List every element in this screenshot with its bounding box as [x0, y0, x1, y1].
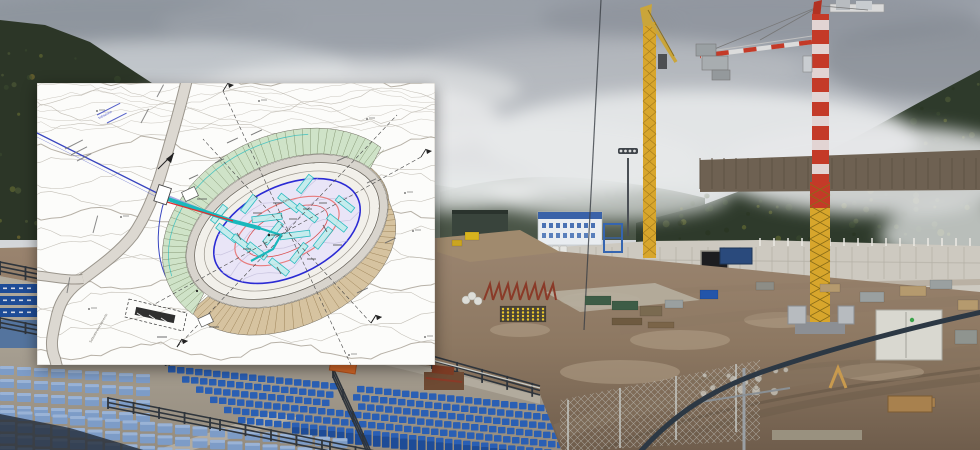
wood-pallet: [888, 396, 932, 412]
dark-building-roof: [452, 210, 508, 214]
counterweight: [856, 1, 872, 10]
shed-sign: [910, 318, 914, 322]
ballast-block: [788, 306, 806, 324]
construction-site-photo: Sottoattraversamento tubazione Zona: [0, 0, 980, 450]
site-office-roof-band: [538, 212, 602, 219]
timber: [772, 430, 862, 440]
site-plan-inset: Sottoattraversamento tubazione Zona: [37, 83, 435, 365]
hook-block: [658, 54, 667, 69]
ballast-block: [838, 306, 854, 324]
blue-container: [720, 248, 752, 264]
site-plan-drawing: Sottoattraversamento tubazione Zona: [37, 83, 435, 365]
crane-cab: [803, 56, 812, 72]
